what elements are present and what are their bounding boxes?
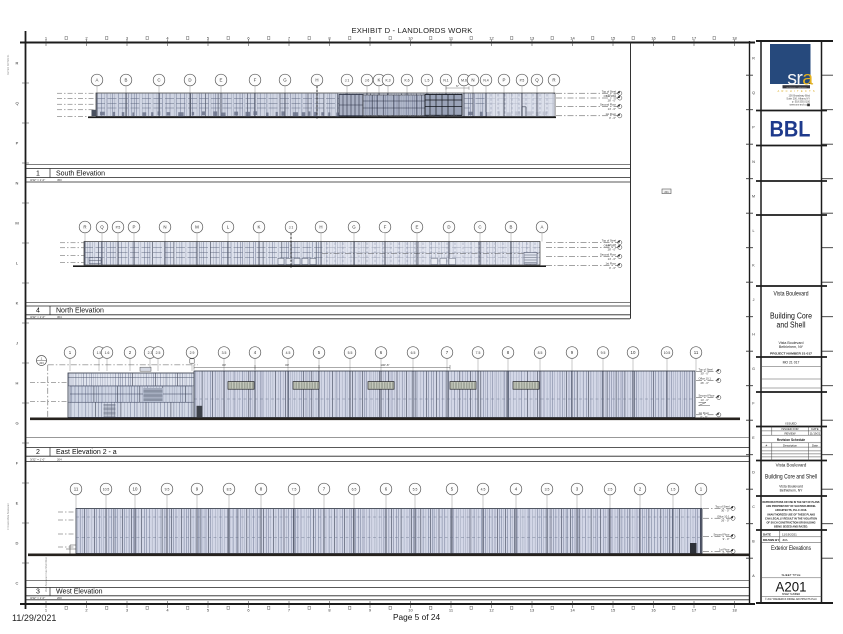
svg-text:Second Floor: Second Floor: [714, 533, 730, 537]
svg-text:3.5: 3.5: [222, 351, 227, 355]
svg-text:P.5: P.5: [116, 225, 121, 229]
svg-text:18: 18: [732, 608, 737, 613]
svg-text:H: H: [16, 381, 19, 386]
svg-text:5.5: 5.5: [413, 487, 418, 491]
svg-text:Top of Steel: Top of Steel: [602, 239, 617, 243]
svg-text:14' - 0": 14' - 0": [608, 107, 616, 111]
svg-text:11: 11: [74, 486, 79, 491]
svg-text:G: G: [15, 421, 18, 426]
svg-text:Vista Boulevard Core Shell Wes: Vista Boulevard Core Shell West: [45, 557, 48, 592]
svg-text:A: A: [541, 224, 544, 229]
svg-text:D: D: [447, 224, 450, 229]
svg-text:30': 30': [285, 363, 289, 367]
svg-text:www.sra-arch.com: www.sra-arch.com: [789, 104, 810, 107]
svg-text:17: 17: [692, 36, 697, 41]
svg-text:10: 10: [631, 350, 636, 355]
svg-text:14' - 0": 14' - 0": [608, 257, 616, 261]
svg-text:K: K: [378, 77, 381, 82]
svg-text:E: E: [16, 501, 19, 506]
svg-text:304: 304: [57, 315, 62, 319]
svg-text:N.4: N.4: [483, 78, 488, 82]
svg-text:Second Floor: Second Floor: [600, 253, 616, 257]
svg-text:1.5: 1.5: [97, 351, 102, 355]
svg-text:8.5: 8.5: [538, 351, 543, 355]
svg-text:A201: A201: [776, 580, 807, 595]
svg-text:14: 14: [570, 36, 575, 41]
svg-text:E: E: [220, 77, 223, 82]
svg-text:J.1: J.1: [289, 225, 294, 229]
svg-text:Offce 10.1: Offce 10.1: [717, 514, 730, 518]
svg-text:P.5: P.5: [520, 78, 525, 82]
svg-text:K: K: [16, 301, 19, 306]
svg-text:architects + planners: architects + planners: [786, 86, 807, 89]
svg-text:Offce 10.1: Offce 10.1: [604, 94, 617, 98]
svg-text:ISSUED: ISSUED: [785, 422, 797, 426]
svg-text:A R C H I T E C T S: A R C H I T E C T S: [778, 89, 816, 93]
svg-text:1.6: 1.6: [105, 351, 110, 355]
svg-text:4.5: 4.5: [481, 487, 486, 491]
svg-text:4.5: 4.5: [286, 351, 291, 355]
svg-text:Description: Description: [783, 443, 797, 447]
svg-text:D: D: [752, 470, 755, 474]
svg-text:SHEET TITLE: SHEET TITLE: [782, 573, 801, 577]
svg-text:5.5: 5.5: [348, 351, 353, 355]
svg-text:East Elevation 2 - a: East Elevation 2 - a: [56, 449, 117, 456]
svg-text:JRA: JRA: [782, 538, 788, 542]
svg-text:Q: Q: [15, 101, 18, 106]
svg-text:26' - 0": 26' - 0": [721, 519, 729, 523]
svg-text:C: C: [157, 77, 160, 82]
svg-text:J: J: [753, 298, 755, 302]
svg-text:12: 12: [489, 608, 494, 613]
svg-text:C: C: [16, 581, 19, 586]
svg-text:13: 13: [530, 36, 535, 41]
svg-text:11: 11: [694, 350, 699, 355]
svg-text:Building Core and Shell: Building Core and Shell: [765, 474, 817, 481]
svg-text:South Elevation: South Elevation: [56, 170, 105, 177]
svg-text:BEING SEIZED AND RAZED.: BEING SEIZED AND RAZED.: [774, 525, 808, 529]
svg-text:R: R: [16, 61, 19, 66]
svg-text:DRAWN BY: DRAWN BY: [763, 538, 779, 542]
svg-text:B: B: [125, 77, 128, 82]
svg-text:C: C: [478, 224, 481, 229]
svg-text:3/32" = 1'-0": 3/32" = 1'-0": [30, 596, 45, 600]
svg-text:0' - 0": 0' - 0": [609, 116, 616, 120]
svg-text:14: 14: [570, 608, 575, 613]
svg-text:Offce 10.1: Offce 10.1: [699, 377, 712, 381]
svg-text:J.1: J.1: [345, 78, 350, 82]
svg-text:A: A: [96, 77, 99, 82]
svg-text:12: 12: [489, 36, 494, 41]
svg-text:2: 2: [36, 449, 40, 456]
svg-text:7.5: 7.5: [476, 351, 481, 355]
svg-text:H: H: [319, 224, 322, 229]
svg-text:MO 21 017: MO 21 017: [783, 361, 800, 365]
svg-text:0' - 0": 0' - 0": [701, 415, 708, 419]
svg-text:P: P: [133, 224, 136, 229]
svg-text:100'-6": 100'-6": [380, 363, 389, 367]
svg-text:1st Floor: 1st Floor: [606, 112, 617, 116]
svg-text:L.5: L.5: [425, 78, 430, 82]
svg-text:18: 18: [732, 36, 737, 41]
svg-text:1st Floor: 1st Floor: [699, 411, 710, 415]
svg-text:2.3: 2.3: [148, 351, 153, 355]
svg-text:3/32" = 1'-0": 3/32" = 1'-0": [30, 315, 45, 319]
svg-text:17: 17: [692, 608, 697, 613]
svg-text:Revision Schedule: Revision Schedule: [777, 438, 806, 442]
svg-text:J: J: [16, 341, 18, 346]
svg-text:K.3: K.3: [385, 78, 390, 82]
svg-text:3/32" = 1'-0": 3/32" = 1'-0": [30, 178, 45, 182]
svg-text:EXHIBIT D - LANDLORDS WORK: EXHIBIT D - LANDLORDS WORK: [351, 26, 472, 35]
svg-text:6.5: 6.5: [352, 487, 357, 491]
svg-text:16: 16: [651, 608, 656, 613]
svg-text:14' - 0": 14' - 0": [701, 398, 709, 402]
svg-text:BBL: BBL: [770, 117, 811, 142]
svg-text:Bethlehem, NY: Bethlehem, NY: [780, 488, 804, 492]
svg-text:11/29/2021: 11/29/2021: [12, 613, 56, 623]
svg-text:9.5: 9.5: [601, 351, 606, 355]
svg-text:N: N: [163, 224, 166, 229]
svg-text:C: C: [752, 505, 755, 509]
svg-text:F: F: [254, 77, 257, 82]
svg-text:K.6: K.6: [404, 78, 409, 82]
svg-text:6.5: 6.5: [411, 351, 416, 355]
svg-text:15: 15: [611, 608, 616, 613]
svg-text:SHEET NUMBER: SHEET NUMBER: [782, 594, 801, 596]
svg-text:1: 1: [36, 170, 40, 177]
svg-text:M.6: M.6: [461, 78, 467, 82]
svg-text:3/32" = 1'-0": 3/32" = 1'-0": [30, 458, 45, 462]
svg-text:2.5: 2.5: [608, 487, 613, 491]
svg-text:M: M: [195, 224, 199, 229]
svg-text:204: 204: [57, 458, 62, 462]
svg-text:© 2017 FREDERICK RIDDEL ARCHIT: © 2017 FREDERICK RIDDEL ARCHITECTS PLLC: [765, 598, 817, 601]
svg-text:M: M: [752, 194, 755, 198]
svg-text:N: N: [752, 160, 755, 164]
svg-text:D: D: [16, 541, 19, 546]
svg-text:Q: Q: [535, 77, 539, 82]
svg-text:8.5: 8.5: [227, 487, 232, 491]
svg-text:1.5: 1.5: [671, 487, 676, 491]
svg-text:201: 201: [664, 190, 669, 194]
svg-text:ISSUED FOR: ISSUED FOR: [781, 427, 798, 431]
svg-text:11/19/2021: 11/19/2021: [782, 532, 797, 536]
svg-text:G: G: [352, 224, 356, 229]
svg-text:450: 450: [57, 178, 62, 182]
svg-text:M: M: [15, 221, 18, 226]
svg-text:C:\Users\Vista Boulevard: C:\Users\Vista Boulevard: [7, 503, 10, 530]
svg-text:Second Floor: Second Floor: [600, 103, 616, 107]
svg-text:1st Floor: 1st Floor: [719, 548, 730, 552]
svg-text:67': 67': [456, 85, 460, 88]
svg-text:10: 10: [133, 486, 138, 491]
svg-text:7.5: 7.5: [292, 487, 297, 491]
svg-text:Top of Steel: Top of Steel: [699, 368, 714, 372]
svg-text:1st Floor: 1st Floor: [606, 262, 617, 266]
svg-text:R: R: [83, 224, 86, 229]
svg-text:30' - 0": 30' - 0": [721, 509, 729, 513]
svg-text:Offce 10.1: Offce 10.1: [604, 244, 617, 248]
svg-text:0' - 0": 0' - 0": [723, 552, 730, 556]
svg-text:Exterior Elevations: Exterior Elevations: [771, 545, 811, 552]
svg-text:P: P: [503, 77, 506, 82]
svg-text:L: L: [753, 229, 755, 233]
svg-text:N: N: [471, 77, 474, 82]
svg-text:200: 200: [57, 596, 62, 600]
svg-text:15: 15: [611, 36, 616, 41]
svg-text:Building Core: Building Core: [770, 312, 812, 321]
svg-text:Top of Steel: Top of Steel: [715, 505, 730, 509]
svg-text:Vista Boulevard: Vista Boulevard: [776, 463, 807, 468]
svg-text:E: E: [416, 224, 419, 229]
svg-text:30' - 0": 30' - 0": [701, 372, 709, 376]
svg-text:J.6: J.6: [365, 78, 370, 82]
svg-text:REVIEW: REVIEW: [784, 431, 795, 435]
svg-text:PROJECT NUMBER 21-017: PROJECT NUMBER 21-017: [770, 352, 812, 356]
svg-text:Q: Q: [752, 91, 755, 95]
svg-text:203: 203: [39, 361, 44, 365]
svg-text:H: H: [752, 332, 755, 336]
svg-text:Top of Steel: Top of Steel: [602, 89, 617, 93]
svg-text:N: N: [16, 181, 19, 186]
svg-text:G: G: [283, 77, 287, 82]
svg-text:13: 13: [530, 608, 535, 613]
svg-text:Q: Q: [100, 224, 104, 229]
svg-text:DATE: DATE: [763, 532, 771, 536]
svg-text:10: 10: [408, 36, 413, 41]
svg-text:N.1: N.1: [443, 78, 448, 82]
svg-text:28' - 0": 28' - 0": [608, 98, 616, 102]
svg-text:F: F: [384, 224, 387, 229]
svg-text:B: B: [510, 224, 513, 229]
svg-text:K: K: [258, 224, 261, 229]
svg-text:G: G: [752, 367, 755, 371]
svg-text:West Elevation: West Elevation: [56, 589, 103, 596]
svg-text:and Shell: and Shell: [777, 321, 806, 330]
svg-text:3.5: 3.5: [545, 487, 550, 491]
svg-text:R: R: [752, 56, 755, 60]
svg-text:30': 30': [222, 363, 226, 367]
svg-text:16: 16: [651, 36, 656, 41]
svg-text:26' - 0": 26' - 0": [701, 381, 709, 385]
svg-text:Page 5 of 24: Page 5 of 24: [393, 612, 440, 622]
svg-text:10.5: 10.5: [103, 487, 110, 491]
svg-text:DATE: DATE: [811, 427, 818, 431]
svg-text:Date: Date: [812, 443, 818, 447]
svg-text:9.5: 9.5: [165, 487, 170, 491]
svg-text:3: 3: [36, 589, 40, 596]
svg-text:0' - 0": 0' - 0": [609, 266, 616, 270]
svg-text:2.9: 2.9: [190, 351, 195, 355]
svg-text:11/19/21: 11/19/21: [810, 431, 821, 435]
svg-text:9' - 0": 9' - 0": [723, 537, 730, 541]
svg-text:D: D: [188, 77, 191, 82]
svg-text:28' - 0": 28' - 0": [608, 248, 616, 252]
svg-text:Second Floor: Second Floor: [699, 394, 715, 398]
svg-text:Bethlehem, NY: Bethlehem, NY: [779, 345, 804, 349]
svg-text:H: H: [315, 77, 318, 82]
svg-text:KEYED NOTES 01: KEYED NOTES 01: [7, 54, 10, 75]
svg-text:Vista Boulevard: Vista Boulevard: [774, 292, 809, 298]
svg-text:10.5: 10.5: [664, 351, 671, 355]
svg-text:North Elevation: North Elevation: [56, 308, 104, 315]
svg-text:P: P: [16, 141, 19, 146]
svg-text:4: 4: [36, 308, 40, 315]
svg-text:R: R: [552, 77, 555, 82]
svg-text:2.5: 2.5: [156, 351, 161, 355]
